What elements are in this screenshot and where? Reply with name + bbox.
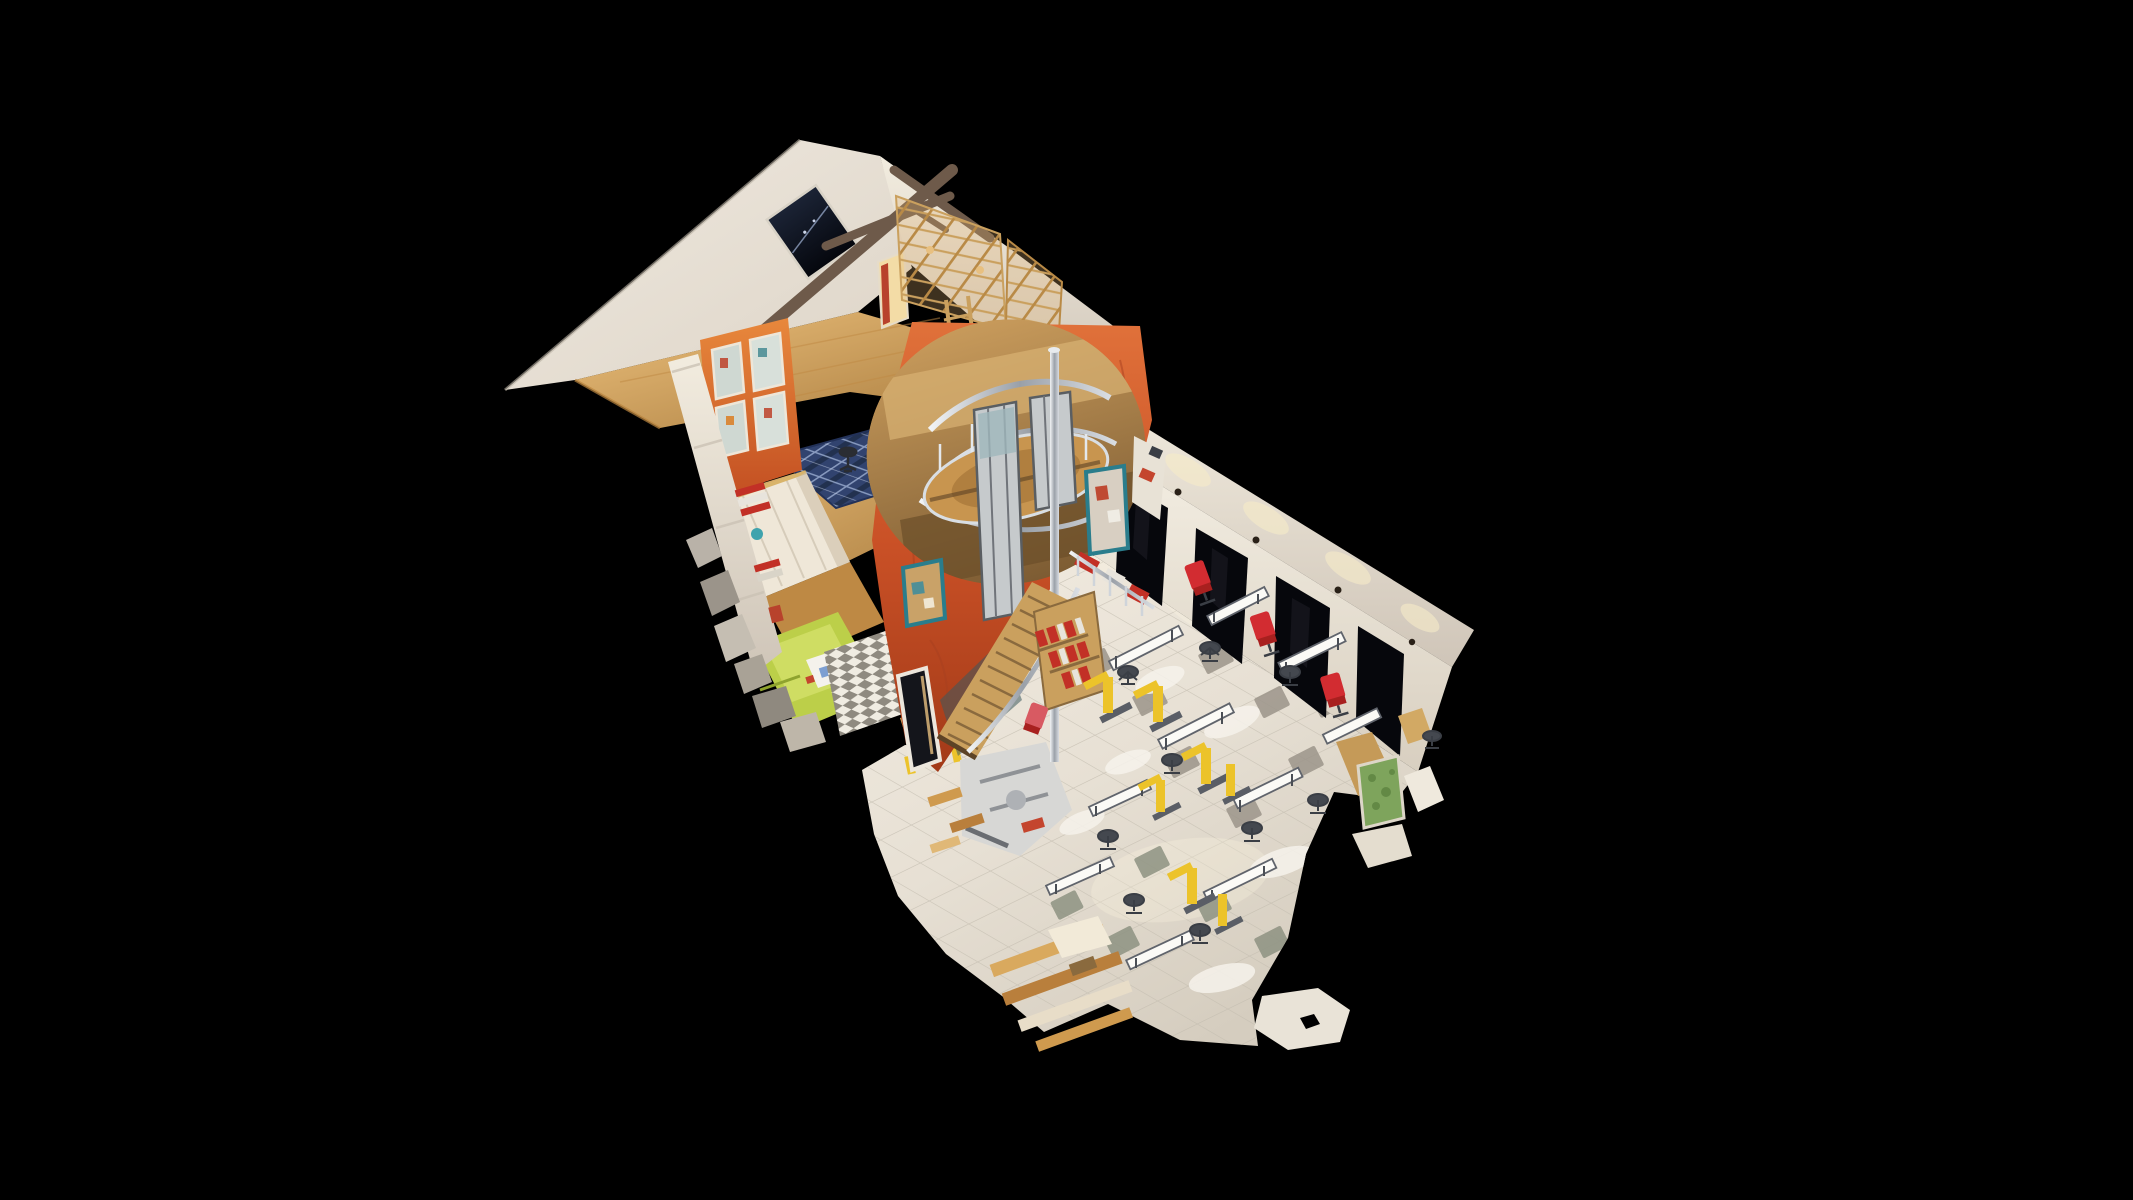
bookshelf: [1033, 592, 1106, 710]
viewer-canvas[interactable]: [0, 0, 2133, 1200]
dollhouse-model[interactable]: [0, 0, 2133, 1200]
